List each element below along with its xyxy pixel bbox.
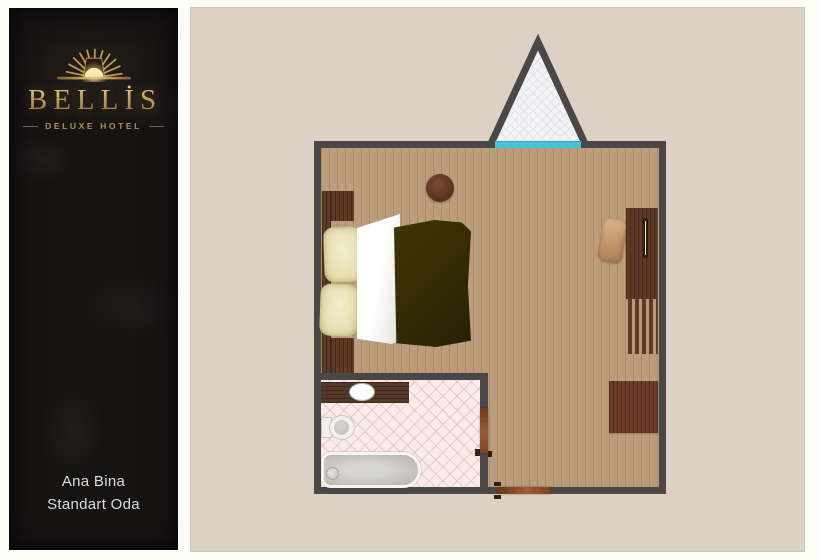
nightstand-bottom bbox=[331, 338, 354, 373]
wall-bottom-left bbox=[314, 487, 498, 494]
wall-right bbox=[659, 141, 666, 494]
blanket bbox=[394, 220, 471, 347]
bathroom-door-handle bbox=[475, 449, 480, 456]
tagline-rule-right bbox=[149, 126, 164, 127]
headboard bbox=[322, 191, 331, 373]
square-table bbox=[609, 381, 658, 433]
slatted-bench bbox=[628, 299, 658, 354]
round-side-table bbox=[426, 174, 454, 202]
entry-door bbox=[498, 487, 550, 494]
wall-top bbox=[314, 141, 666, 148]
wardrobe-handle bbox=[643, 218, 648, 258]
floorplan-panel bbox=[190, 7, 805, 552]
sunburst-icon bbox=[39, 30, 149, 82]
triangular-bay-window bbox=[479, 30, 597, 148]
room-label-type: Standart Oda bbox=[47, 493, 140, 516]
entry-door-handle bbox=[494, 495, 501, 499]
brand-name: BELLİS bbox=[12, 84, 178, 117]
bathroom-door bbox=[480, 408, 488, 453]
bathroom-wall-top bbox=[321, 373, 488, 380]
entry-door-handle bbox=[494, 482, 501, 486]
pillow bbox=[323, 226, 363, 282]
tub-drain bbox=[326, 467, 339, 480]
bathroom-wall-right-upper bbox=[480, 373, 488, 408]
brand-tagline-row: DELUXE HOTEL bbox=[9, 121, 178, 131]
tagline-rule-left bbox=[23, 126, 38, 127]
wall-bottom-right bbox=[550, 487, 666, 494]
brand-tagline: DELUXE HOTEL bbox=[45, 121, 142, 131]
duvet bbox=[357, 214, 400, 344]
pillow bbox=[319, 283, 359, 336]
window-sill bbox=[495, 141, 581, 148]
room-label-building: Ana Bina bbox=[47, 470, 140, 493]
bathroom-door-handle bbox=[488, 451, 492, 457]
hotel-logo: BELLİS DELUXE HOTEL bbox=[9, 30, 178, 131]
sink bbox=[349, 383, 375, 401]
brand-panel: BELLİS DELUXE HOTEL Ana Bina Standart Od… bbox=[9, 8, 178, 550]
toilet-bowl bbox=[329, 415, 355, 440]
nightstand-top bbox=[331, 191, 354, 221]
wardrobe-desk bbox=[626, 208, 658, 299]
room-label: Ana Bina Standart Oda bbox=[47, 470, 140, 516]
bathroom-wall-right-lower bbox=[480, 453, 488, 487]
